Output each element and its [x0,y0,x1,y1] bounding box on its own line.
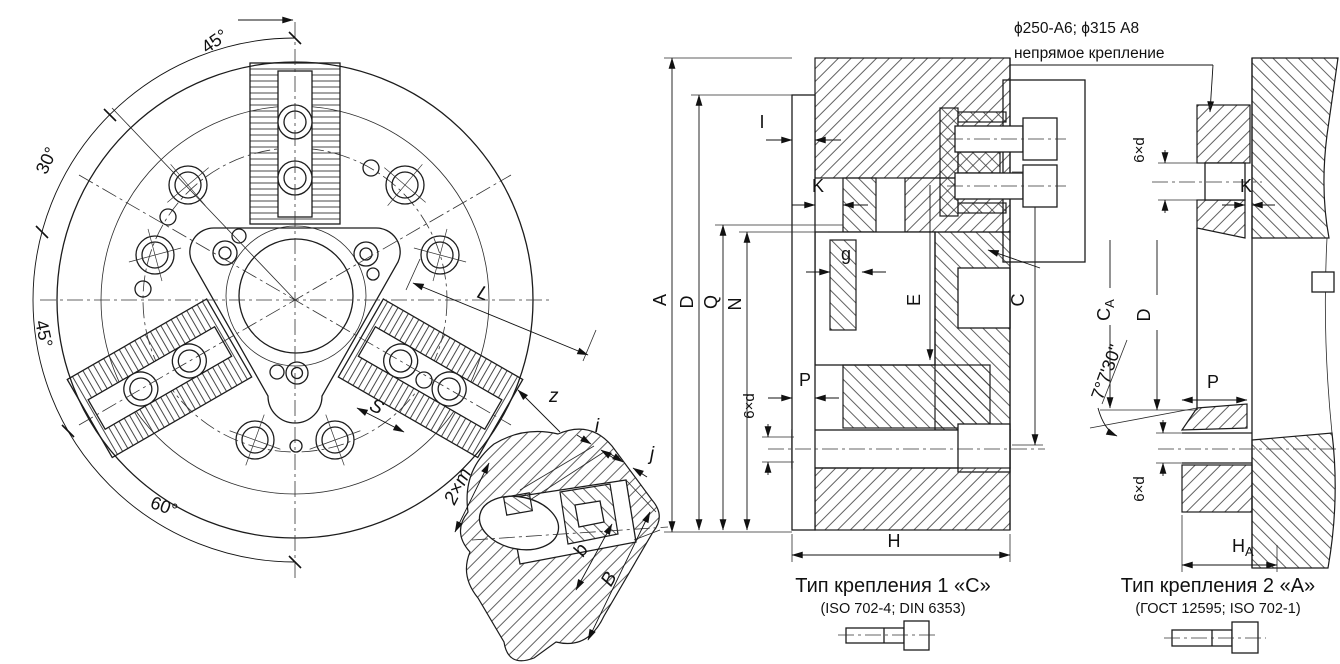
dim-label-K1: K [812,176,824,196]
angle-label-45-top: 45° [198,25,232,57]
standards-type-2: (ГОСТ 12595; ISO 702-1) [1135,601,1300,617]
dim-label-E: E [904,294,924,306]
dim-label-6d-bottom: 6×d [1131,476,1148,501]
dim-label-6d-top: 6×d [1131,137,1148,162]
dim-label-P1: P [799,370,811,390]
angle-label-30: 30° [32,144,62,177]
dim-label-z: z [548,386,559,407]
center-bore [239,239,353,353]
angle-label-60: 60° [148,492,180,520]
s2-flange-top [1197,105,1250,163]
s1-actuator-block [843,365,990,428]
dim-label-CA: CA [1094,299,1117,321]
dim-label-S: S [366,395,387,420]
callout-note-text: непрямое крепление [1014,45,1165,62]
dim-label-g: g [841,244,851,264]
s1-flange-plate [792,95,815,530]
s2-outer-surface [1325,238,1332,433]
dim-label-C: C [1008,294,1028,307]
dim-label-D1: D [677,296,697,309]
dim-label-H: H [888,531,901,551]
section-view-type2: 6×d K CA D 7°7'30" P 6×d HA [1087,58,1338,572]
standards-type-1: (ISO 702-4; DIN 6353) [820,601,965,617]
dim-label-P2: P [1207,372,1219,392]
dim-label-6d-1: 6×d [741,393,758,418]
drawing-canvas: 45° 30° 45° 60° L S z [0,0,1340,664]
s1-bottom-mass [815,468,1010,530]
dim-label-K2: K [1240,176,1252,196]
angle-label-7-7-30: 7°7'30" [1087,342,1125,402]
caption-type1: Тип крепления 1 «С» (ISO 702-4; DIN 6353… [795,575,991,650]
dim-label-HA: HA [1232,536,1254,559]
s2-bottom-right-mass [1252,433,1335,568]
s1-key-block [958,424,1010,472]
angle-arc-7deg [1098,408,1117,436]
s2-flange-chamfer [1197,200,1245,238]
chuck-technical-drawing: 45° 30° 45° 60° L S z [0,0,1340,664]
s1-pocket [958,268,1010,328]
detail-key-section [504,493,533,515]
dim-label-N: N [725,298,745,311]
dim-label-D2: D [1134,309,1154,322]
callout-spec-text: ϕ250-A6; ϕ315 A8 [1014,20,1139,37]
angle-label-45-left: 45° [31,318,56,349]
dim-label-i: i [595,416,600,437]
dim-label-Q: Q [701,295,721,309]
s2-taper-wedge [1182,404,1247,430]
clamp-ring-section [940,108,958,216]
s2-flange-bottom [1182,465,1252,512]
caption-type2: Тип крепления 2 «А» (ГОСТ 12595; ISO 702… [1121,575,1315,653]
dim-label-j: j [647,444,655,465]
s2-lip-step [1312,272,1334,292]
s2-top-right-mass [1252,58,1338,238]
bolt-icon-type2 [1164,622,1266,653]
caption-mount-type-2: Тип крепления 2 «А» [1121,575,1315,597]
bolt-icon-type1 [838,621,938,650]
caption-mount-type-1: Тип крепления 1 «С» [795,575,991,597]
dim-label-A: A [650,294,670,306]
dim-label-I: I [759,112,764,132]
